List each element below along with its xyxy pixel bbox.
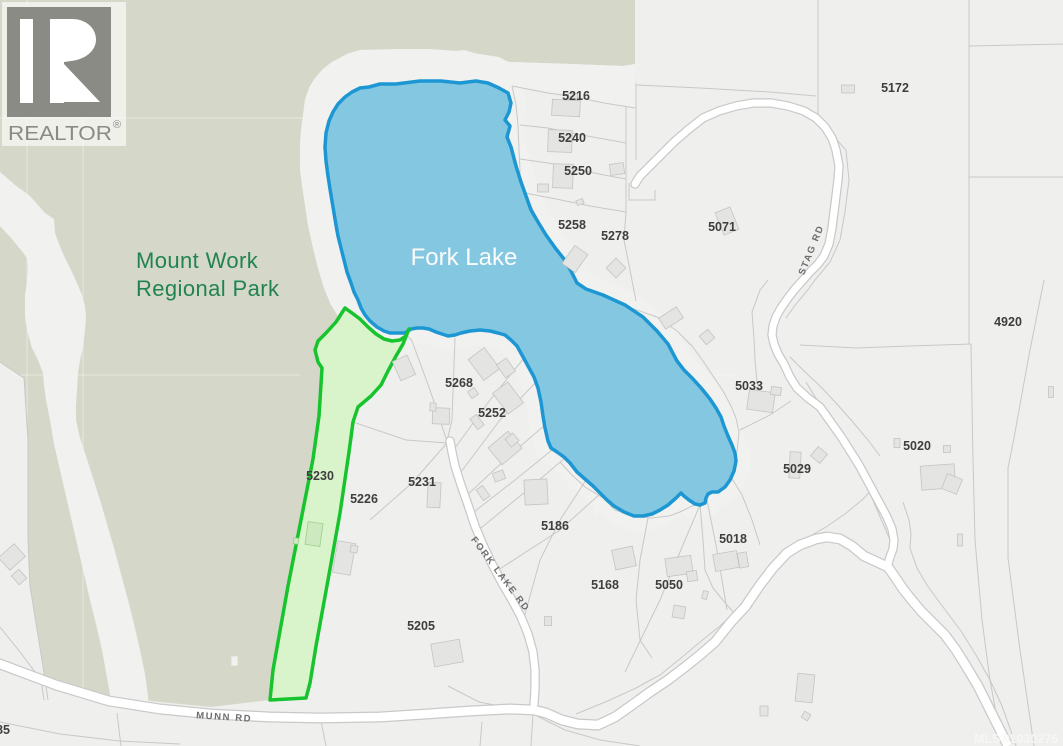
svg-text:5240: 5240: [558, 131, 586, 145]
svg-text:REALTOR: REALTOR: [8, 123, 112, 145]
svg-text:5230: 5230: [306, 469, 334, 483]
svg-text:5029: 5029: [783, 462, 811, 476]
svg-text:Mount Work: Mount Work: [136, 248, 259, 273]
svg-text:5226: 5226: [350, 492, 378, 506]
svg-text:5258: 5258: [558, 218, 586, 232]
svg-text:Regional Park: Regional Park: [136, 276, 280, 301]
svg-text:5205: 5205: [407, 619, 435, 633]
svg-text:4920: 4920: [994, 315, 1022, 329]
svg-text:5231: 5231: [408, 475, 436, 489]
svg-text:5018: 5018: [719, 532, 747, 546]
svg-text:5268: 5268: [445, 376, 473, 390]
svg-text:5216: 5216: [562, 89, 590, 103]
svg-text:®: ®: [113, 119, 121, 131]
svg-text:5168: 5168: [591, 578, 619, 592]
svg-text:5033: 5033: [735, 379, 763, 393]
svg-text:5252: 5252: [478, 406, 506, 420]
svg-text:5172: 5172: [881, 81, 909, 95]
svg-text:5020: 5020: [903, 439, 931, 453]
svg-text:5250: 5250: [564, 164, 592, 178]
svg-text:85: 85: [0, 723, 10, 737]
svg-text:5278: 5278: [601, 229, 629, 243]
svg-text:5186: 5186: [541, 519, 569, 533]
svg-text:5071: 5071: [708, 220, 736, 234]
svg-text:MLS®1030276: MLS®1030276: [974, 732, 1058, 746]
svg-text:5050: 5050: [655, 578, 683, 592]
svg-text:Fork Lake: Fork Lake: [411, 244, 518, 271]
